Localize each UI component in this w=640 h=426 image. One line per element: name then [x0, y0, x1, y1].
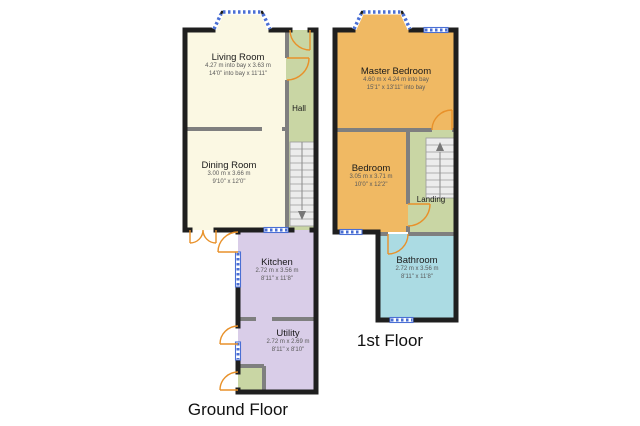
first-staircase: [426, 138, 454, 198]
kitchen-label: Kitchen 2.72 m x 3.56 m 8'11" x 11'8": [255, 257, 298, 283]
utility-imperial: 8'11" x 8'10": [266, 347, 309, 355]
bathroom-name: Bathroom: [395, 255, 438, 266]
floorplan-canvas: Living Room 4.27 m into bay x 3.63 m 14'…: [0, 0, 640, 426]
utility-name: Utility: [266, 328, 309, 339]
utility-metric: 2.72 m x 2.69 m: [266, 339, 309, 347]
master-bedroom-imperial: 15'1" x 13'11" into bay: [361, 85, 431, 93]
kitchen-metric: 2.72 m x 3.56 m: [255, 268, 298, 276]
floorplan-drawing: [0, 0, 640, 426]
utility-label: Utility 2.72 m x 2.69 m 8'11" x 8'10": [266, 328, 309, 354]
living-room-imperial: 14'0" into bay x 11'11": [205, 71, 271, 79]
bedroom-imperial: 10'0" x 12'2": [349, 182, 392, 190]
hall-name: Hall: [292, 104, 306, 113]
bathroom-window: [390, 318, 413, 323]
kitchen-window: [236, 252, 241, 287]
bathroom-label: Bathroom 2.72 m x 3.56 m 8'11" x 11'8": [395, 255, 438, 281]
first-floor-title: 1st Floor: [357, 331, 423, 351]
ground-staircase: [290, 142, 314, 226]
rear-hall-window: [264, 228, 288, 233]
utility-door-arc: [220, 326, 238, 344]
porch-door-arc: [220, 372, 238, 390]
bathroom-metric: 2.72 m x 3.56 m: [395, 266, 438, 274]
living-room-label: Living Room 4.27 m into bay x 3.63 m 14'…: [205, 52, 271, 78]
master-bedroom-window: [424, 28, 448, 33]
bedroom-name: Bedroom: [349, 163, 392, 174]
dining-room-name: Dining Room: [202, 160, 257, 171]
kitchen-imperial: 8'11" x 11'8": [255, 276, 298, 284]
master-bedroom-label: Master Bedroom 4.60 m x 4.24 m into bay …: [361, 66, 431, 92]
dining-room-label: Dining Room 3.00 m x 3.66 m 9'10" x 12'0…: [202, 160, 257, 186]
hall-label: Hall: [292, 104, 306, 113]
living-room-name: Living Room: [205, 52, 271, 63]
dining-room-imperial: 9'10" x 12'0": [202, 179, 257, 187]
ground-floor-title: Ground Floor: [188, 400, 288, 420]
bedroom-label: Bedroom 3.05 m x 3.71 m 10'0" x 12'2": [349, 163, 392, 189]
master-bedroom-metric: 4.60 m x 4.24 m into bay: [361, 77, 431, 85]
bedroom-window: [340, 230, 362, 235]
living-room-metric: 4.27 m into bay x 3.63 m: [205, 63, 271, 71]
dining-room-metric: 3.00 m x 3.66 m: [202, 171, 257, 179]
landing-name: Landing: [417, 195, 445, 204]
living-room-area: [187, 30, 288, 130]
kitchen-name: Kitchen: [255, 257, 298, 268]
landing-label: Landing: [417, 195, 445, 204]
bathroom-imperial: 8'11" x 11'8": [395, 274, 438, 282]
porch-area: [238, 366, 264, 392]
bedroom-metric: 3.05 m x 3.71 m: [349, 174, 392, 182]
kitchen-door-arc: [218, 232, 238, 252]
master-bedroom-name: Master Bedroom: [361, 66, 431, 77]
dining-french-doors-arc: [190, 230, 216, 243]
